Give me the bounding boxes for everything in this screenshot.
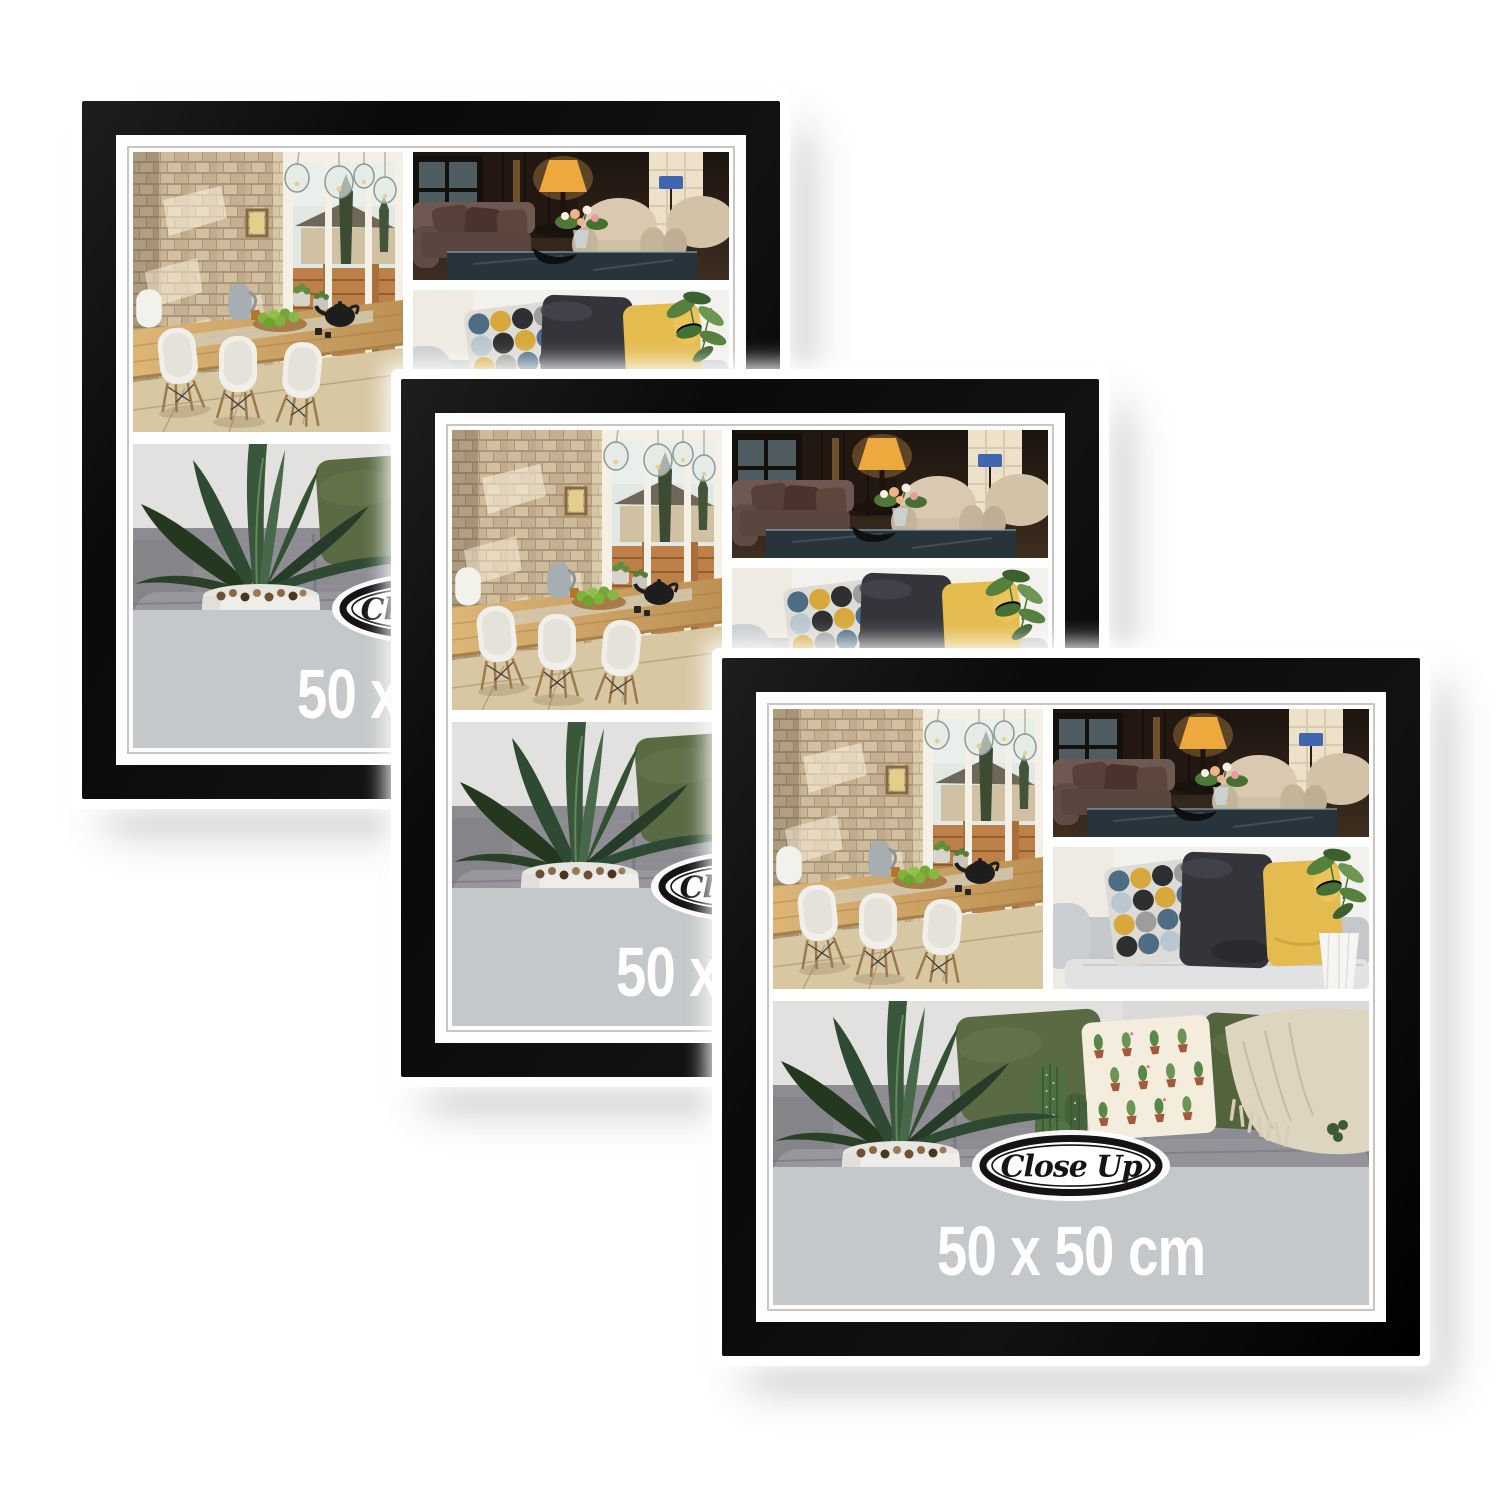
dining-room-photo [133, 152, 403, 432]
living-room-illustration [1053, 709, 1369, 837]
dining-room-photo [452, 430, 722, 710]
dining-room-illustration [133, 152, 403, 432]
sofa-pillows-photo [1053, 847, 1369, 989]
living-room-illustration [732, 430, 1048, 558]
living-room-photo [1053, 709, 1369, 837]
brand-text: Close Up [1001, 1150, 1143, 1185]
picture-frame-front: 50 x 50 cm Close Up [722, 658, 1420, 1356]
living-room-illustration [413, 152, 729, 280]
dining-room-illustration [773, 709, 1043, 989]
dining-room-photo [773, 709, 1043, 989]
dining-room-illustration [452, 430, 722, 710]
photo-collage: 50 x 50 cm Close Up [773, 709, 1369, 1305]
closeup-logo-icon: Close Up [971, 1130, 1171, 1202]
product-image-canvas: 50 x 50 cm Close Up [0, 0, 1500, 1509]
living-room-photo [732, 430, 1048, 558]
sofa-pillows-illustration [1053, 847, 1369, 989]
white-mat: 50 x 50 cm Close Up [756, 692, 1386, 1322]
living-room-photo [413, 152, 729, 280]
closeup-brand-logo: Close Up [971, 1130, 1171, 1202]
